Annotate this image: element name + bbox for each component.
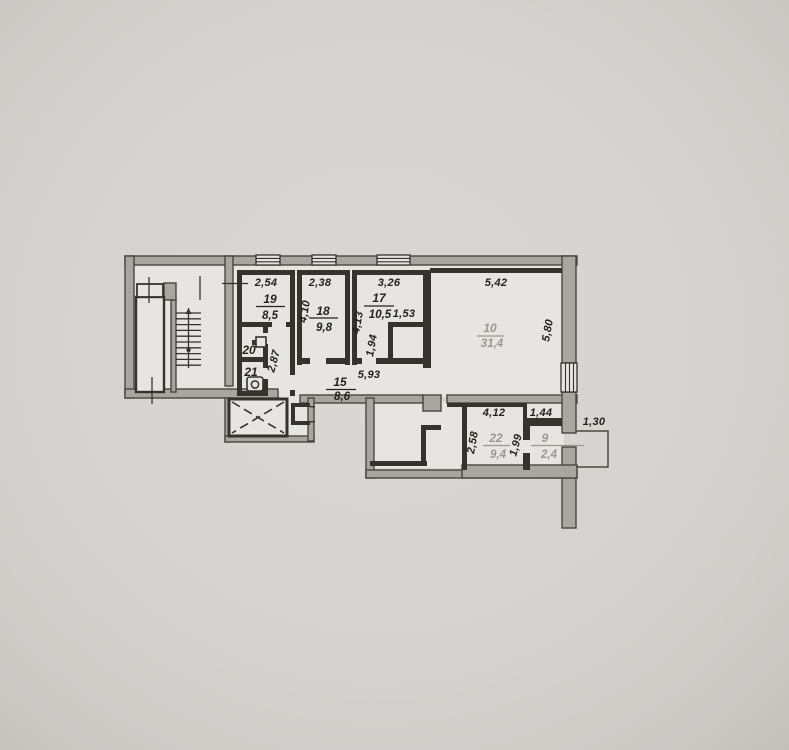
room10-area-label: 31,4 (481, 338, 504, 350)
floorplan-drawing: 19 8,5 18 9,8 17 10,5 15 8,6 10 31,4 20 … (0, 0, 789, 750)
room15-area-label: 8,6 (334, 391, 351, 403)
room10-number-label: 10 (483, 321, 497, 335)
room20-number-label: 20 (241, 343, 256, 357)
room22-area-label: 9,4 (490, 449, 507, 461)
room18-number-label: 18 (316, 304, 330, 318)
floorplan-document: 19 8,5 18 9,8 17 10,5 15 8,6 10 31,4 20 … (0, 0, 789, 750)
room9-area-label: 2,4 (540, 449, 558, 461)
room22-number-label: 22 (488, 431, 503, 445)
dim-room9-width: 1,44 (530, 407, 553, 419)
room15-number-label: 15 (333, 375, 347, 389)
room17-area-label: 10,5 (369, 309, 392, 321)
room9-number-label: 9 (542, 431, 549, 445)
window-room10-icon (561, 363, 577, 392)
dim-room17-width: 3,26 (378, 277, 401, 289)
window-room19-icon (256, 255, 280, 265)
dim-corridor-length: 5,93 (358, 369, 381, 381)
elevator-icon (229, 399, 287, 436)
shaft-outline (136, 297, 164, 392)
room19-number-label: 19 (263, 292, 277, 306)
room19-area-label: 8,5 (262, 310, 279, 322)
room18-area-label: 9,8 (316, 322, 333, 334)
room17-number-label: 17 (372, 291, 387, 305)
toilet-icon (247, 377, 263, 391)
dim-closet-width: 1,53 (393, 308, 416, 320)
dim-room22-width: 4,12 (482, 407, 506, 419)
dim-balcony-width: 1,30 (583, 416, 606, 428)
dim-room19-width: 2,54 (254, 277, 278, 289)
window-room18-icon (312, 255, 336, 265)
window-room17-icon (377, 255, 410, 265)
room21-number-label: 21 (243, 365, 258, 379)
dim-room18-width: 2,38 (308, 277, 332, 289)
dim-room10-width: 5,42 (485, 277, 508, 289)
